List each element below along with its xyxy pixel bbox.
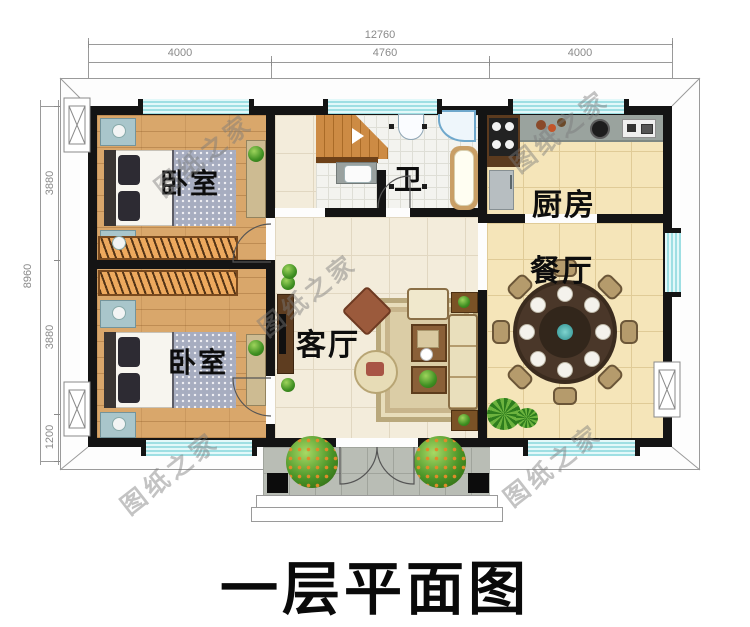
sink [344,165,372,183]
tile-accent [389,124,394,129]
dim-left-total: 8960 [21,236,35,316]
kitchen-label: 厨房 [532,180,596,224]
bed-headboard [104,150,116,226]
wall-kitchen-dining [597,214,672,223]
wall-bath-kitchen [478,106,487,223]
porch-column [267,473,288,493]
dimension-line-left-segments [58,100,59,465]
living-label: 客厅 [296,320,360,364]
bed-pillow [118,155,140,185]
bed-pillow [118,373,140,403]
plan-title: 一层平面图 [0,542,750,626]
hallway-floor [275,115,316,208]
dim-top-seg-1: 4000 [140,46,220,60]
dining-chair [553,387,577,405]
dim-tick [88,41,89,48]
flower-arrangement [419,370,437,388]
bed-pillow [118,191,140,221]
wall-bath-living [325,208,377,217]
wall-kitchen-dining [478,214,525,223]
dim-tick [672,41,673,48]
toilet [398,114,424,140]
lamp [112,306,126,320]
dimension-line-top-segments [88,62,672,63]
potted-plant [458,296,470,308]
dimension-line-top-total [88,44,672,45]
floor-plant [516,408,538,428]
wall-bath-living [410,208,487,217]
lamp [112,236,126,250]
lamp [112,124,126,138]
porch-column [468,473,489,493]
tile-accent [422,124,427,129]
dim-top-seg-2: 4760 [345,46,425,60]
wardrobe [98,270,238,296]
place-setting [530,297,546,313]
dim-tick [489,59,490,66]
table-plate [420,348,433,361]
window-dining-right [665,228,681,297]
wall-between-bedrooms [88,260,275,269]
panel-button [627,124,636,132]
place-setting [557,362,573,378]
dim-left-seg-3: 1200 [43,397,57,477]
place-setting [595,324,611,340]
potted-plant [248,146,264,162]
panel-button [641,124,653,134]
burner [492,140,501,149]
dim-top-seg-3: 4000 [540,46,620,60]
wall-bath-stub [377,170,386,217]
dining-label: 餐厅 [530,246,594,290]
dim-top-total: 12760 [340,28,420,42]
floor-plan-page: 12760 4000 4760 4000 8960 3880 3880 1200 [0,0,750,627]
potted-plant [282,264,297,279]
table-centerpiece [557,324,573,340]
burner [492,122,501,131]
sofa [448,314,478,410]
bathtub-basin [454,150,474,206]
bedroom-bottom-label: 卧室 [168,341,228,381]
armchair [407,288,449,320]
dim-left-seg-2: 3880 [43,297,57,377]
potted-plant [281,378,295,392]
porch-bush [414,436,466,488]
bed-headboard [104,332,116,408]
dimension-line-left-total [40,100,41,465]
dining-chair [620,320,638,344]
ottoman-tray [366,362,384,376]
wall-bedrooms-living [266,106,275,218]
bathroom-label: 卫 [394,158,424,198]
dim-left-seg-1: 3880 [43,143,57,223]
place-setting [519,324,535,340]
lamp [112,417,126,431]
wall-bedrooms-living [266,424,275,447]
bed-pillow [118,337,140,367]
burner [505,122,514,131]
wall-exterior-left [88,106,97,447]
dim-tick [271,59,272,66]
potted-plant [458,414,470,426]
place-setting [530,351,546,367]
porch-bush [286,436,338,488]
wall-living-dining [478,290,487,447]
table-tray [417,330,439,348]
porch-step [251,507,503,522]
dining-chair [492,320,510,344]
place-setting [584,351,600,367]
window-stairs-bath [323,99,442,114]
place-setting [584,297,600,313]
